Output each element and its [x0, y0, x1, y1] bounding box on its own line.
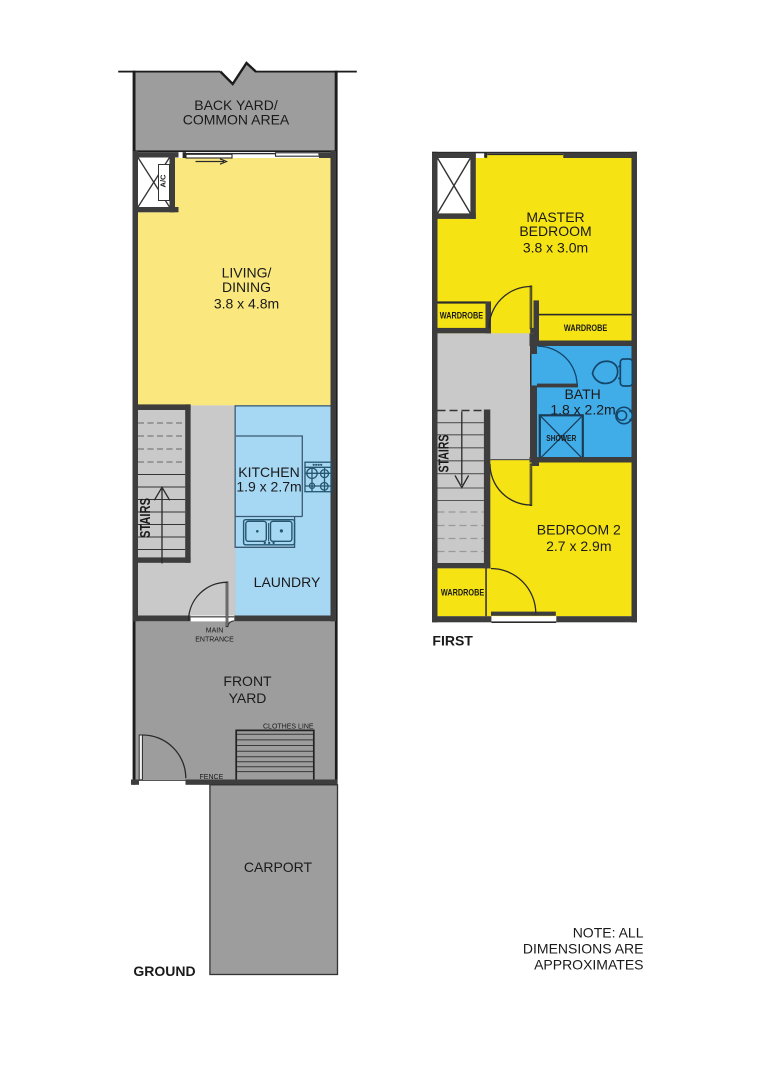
svg-text:LAUNDRY: LAUNDRY — [254, 574, 321, 590]
svg-text:A/C: A/C — [159, 174, 168, 188]
svg-text:STAIRS: STAIRS — [436, 435, 453, 473]
svg-text:1.9 x 2.7m: 1.9 x 2.7m — [236, 479, 301, 495]
svg-text:2.7 x 2.9m: 2.7 x 2.9m — [546, 538, 611, 554]
svg-text:APPROXIMATES: APPROXIMATES — [534, 957, 643, 973]
svg-text:NOTE: ALL: NOTE: ALL — [573, 925, 644, 941]
svg-text:WARDROBE: WARDROBE — [564, 323, 607, 333]
svg-text:BACK YARD/: BACK YARD/ — [194, 97, 278, 113]
svg-text:STAIRS: STAIRS — [137, 498, 154, 538]
svg-text:ENTRANCE: ENTRANCE — [195, 636, 234, 643]
svg-text:CARPORT: CARPORT — [244, 859, 313, 875]
svg-text:DIMENSIONS ARE: DIMENSIONS ARE — [523, 941, 644, 957]
svg-text:BEDROOM: BEDROOM — [519, 223, 591, 239]
svg-text:MAIN: MAIN — [206, 627, 224, 634]
svg-text:GROUND: GROUND — [133, 963, 195, 979]
svg-text:DINING: DINING — [222, 279, 271, 295]
svg-text:3.8 x 3.0m: 3.8 x 3.0m — [523, 240, 588, 256]
svg-text:FIRST: FIRST — [432, 633, 473, 649]
svg-text:BATH: BATH — [564, 386, 600, 402]
svg-text:LIVING/: LIVING/ — [222, 265, 272, 281]
svg-text:BEDROOM 2: BEDROOM 2 — [537, 522, 621, 538]
svg-text:CLOTHES LINE: CLOTHES LINE — [263, 724, 314, 731]
svg-text:SHOWER: SHOWER — [546, 434, 576, 443]
svg-text:YARD: YARD — [229, 690, 267, 706]
svg-text:WARDROBE: WARDROBE — [441, 588, 484, 598]
svg-text:3.8 x 4.8m: 3.8 x 4.8m — [214, 296, 279, 312]
svg-text:COMMON AREA: COMMON AREA — [183, 112, 290, 128]
svg-text:WARDROBE: WARDROBE — [440, 310, 483, 320]
svg-text:FRONT: FRONT — [223, 673, 272, 689]
